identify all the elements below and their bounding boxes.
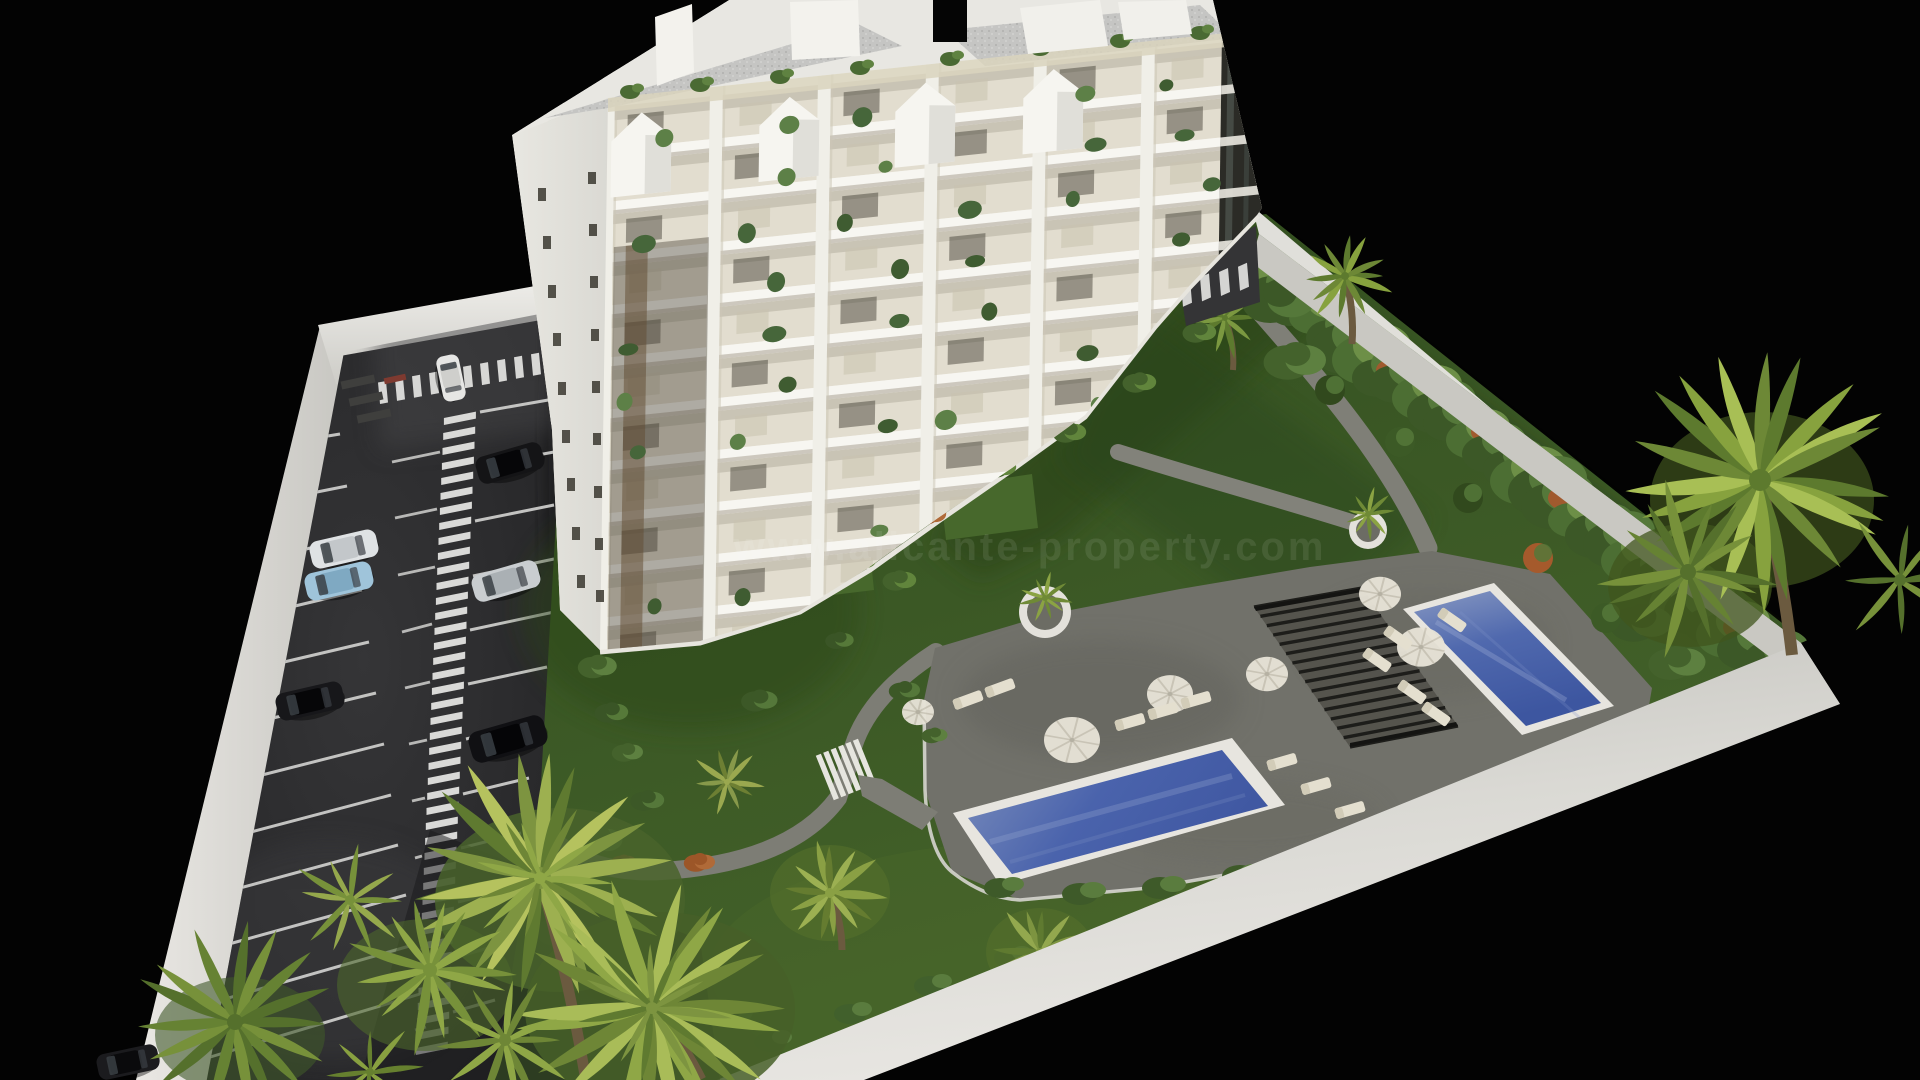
svg-text:www.alicante-property.com: www.alicante-property.com [733,525,1327,569]
